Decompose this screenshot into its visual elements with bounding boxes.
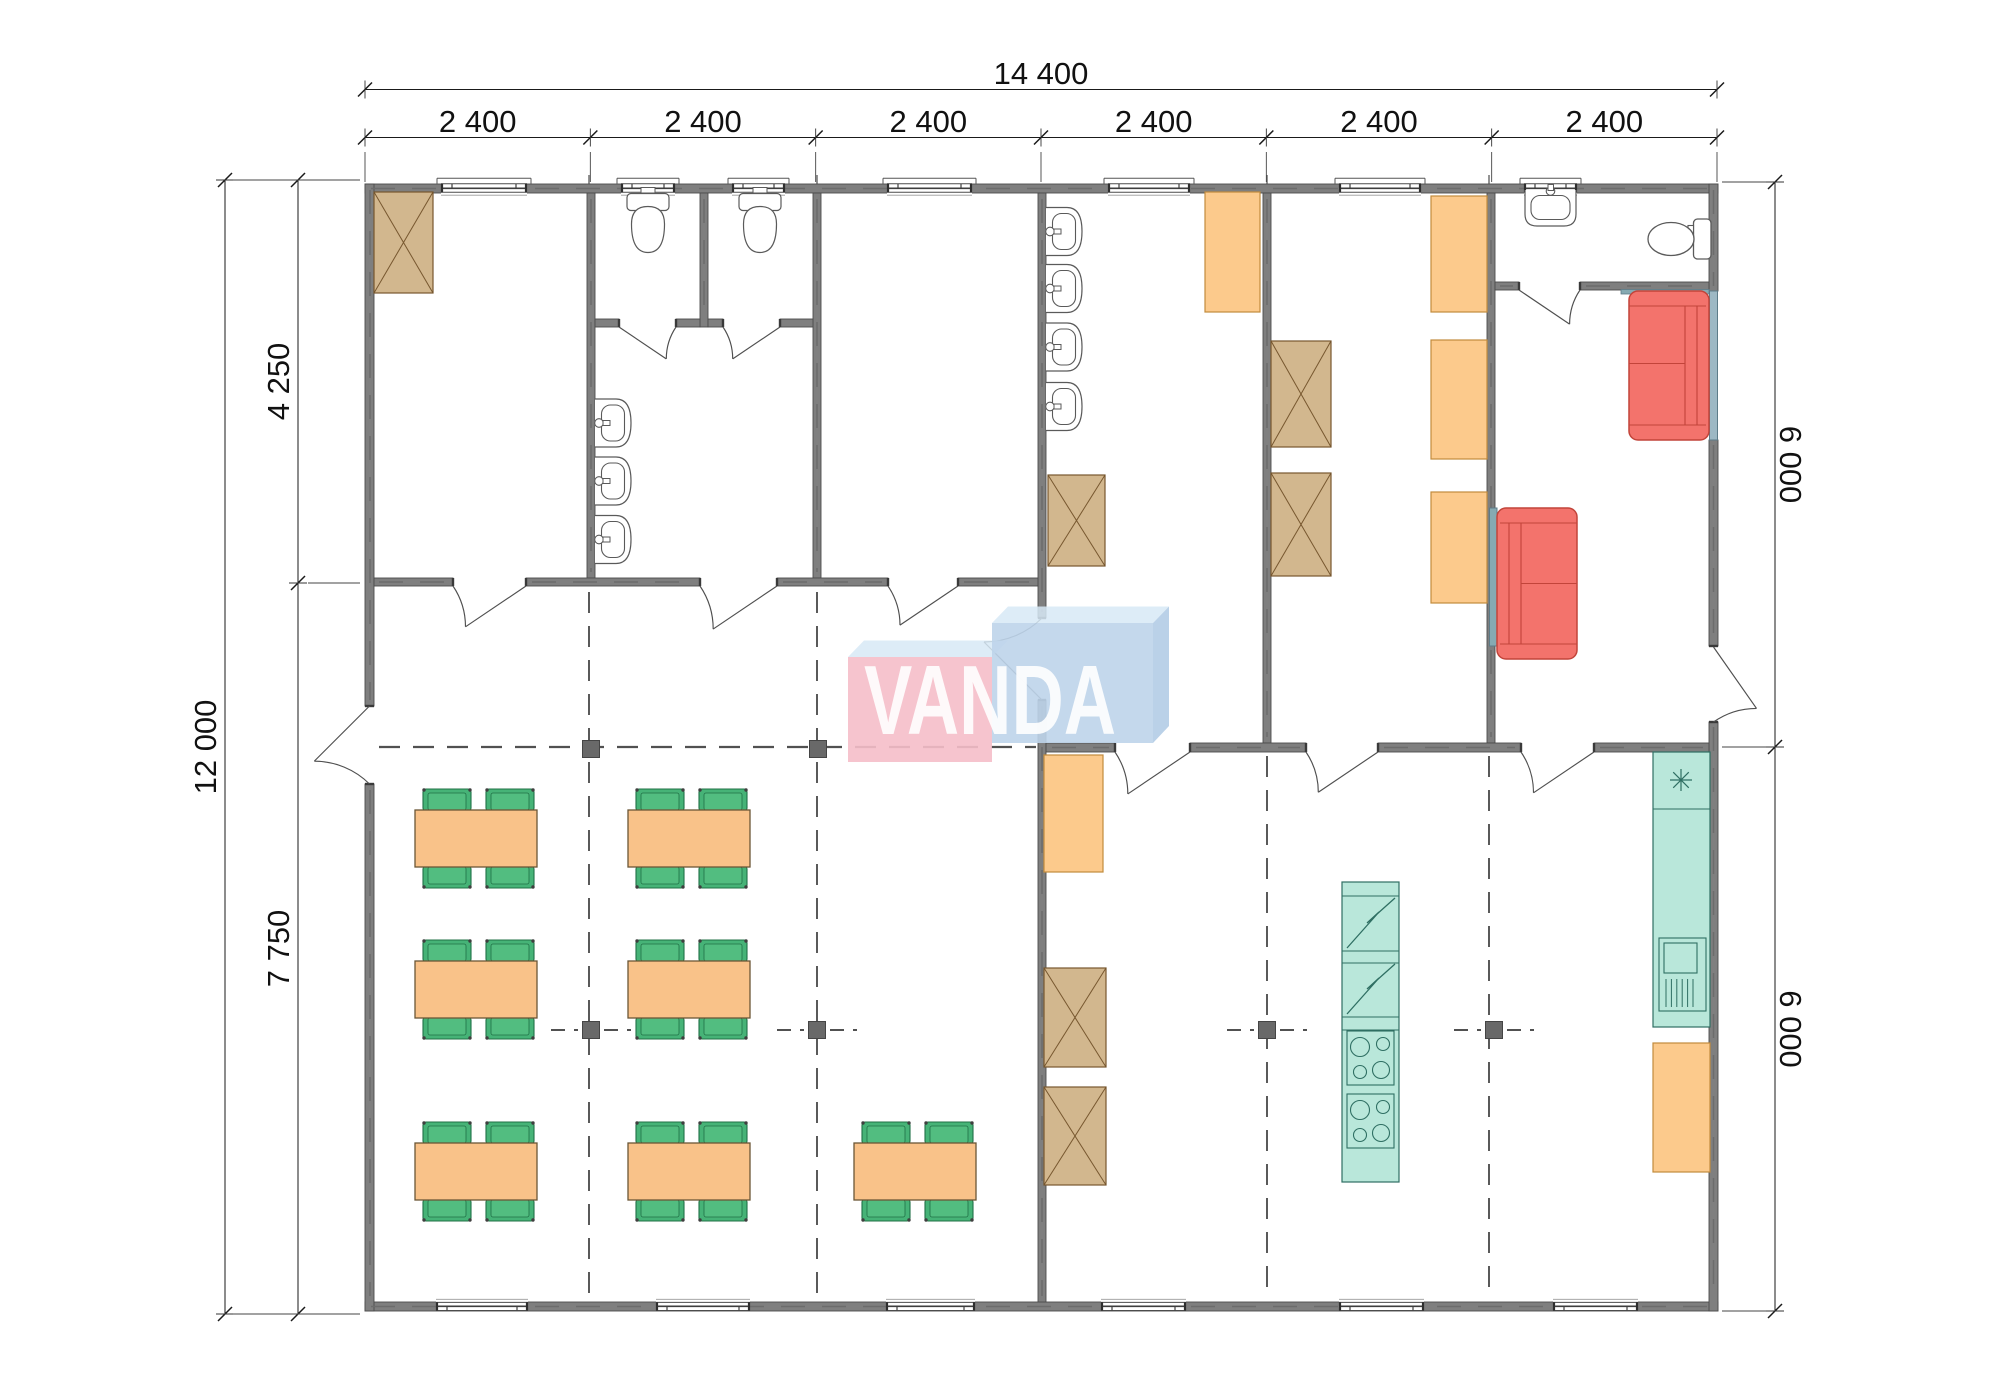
svg-text:7 750: 7 750 [261, 910, 296, 988]
svg-text:VANDA: VANDA [864, 645, 1116, 755]
svg-text:2 400: 2 400 [664, 104, 742, 139]
svg-text:2 400: 2 400 [890, 104, 968, 139]
svg-text:6 000: 6 000 [1773, 426, 1808, 504]
svg-text:2 400: 2 400 [1115, 104, 1193, 139]
svg-text:6 000: 6 000 [1773, 990, 1808, 1068]
svg-text:12 000: 12 000 [188, 700, 223, 795]
svg-text:4 250: 4 250 [261, 343, 296, 421]
svg-text:2 400: 2 400 [439, 104, 517, 139]
svg-text:2 400: 2 400 [1566, 104, 1644, 139]
svg-text:2 400: 2 400 [1340, 104, 1418, 139]
svg-text:14 400: 14 400 [994, 56, 1089, 91]
